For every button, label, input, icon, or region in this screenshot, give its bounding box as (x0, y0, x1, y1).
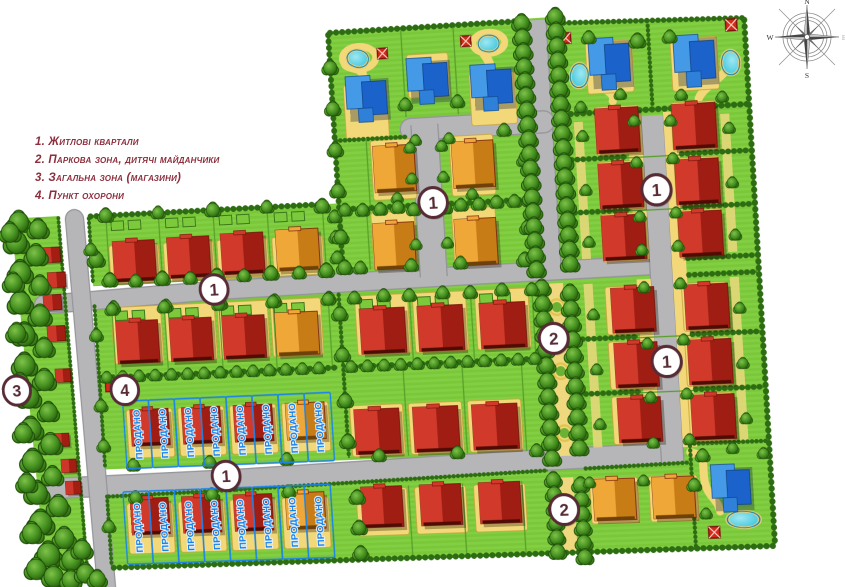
svg-text:1: 1 (209, 280, 219, 300)
svg-text:1: 1 (221, 466, 231, 486)
svg-text:2: 2 (548, 329, 559, 349)
svg-text:W: W (766, 33, 774, 42)
svg-text:N: N (804, 0, 810, 6)
svg-text:2: 2 (559, 500, 570, 520)
svg-text:1: 1 (428, 193, 439, 213)
svg-text:3: 3 (12, 381, 22, 401)
svg-text:1: 1 (661, 352, 672, 373)
svg-text:S: S (805, 71, 809, 80)
svg-text:1: 1 (651, 180, 662, 201)
